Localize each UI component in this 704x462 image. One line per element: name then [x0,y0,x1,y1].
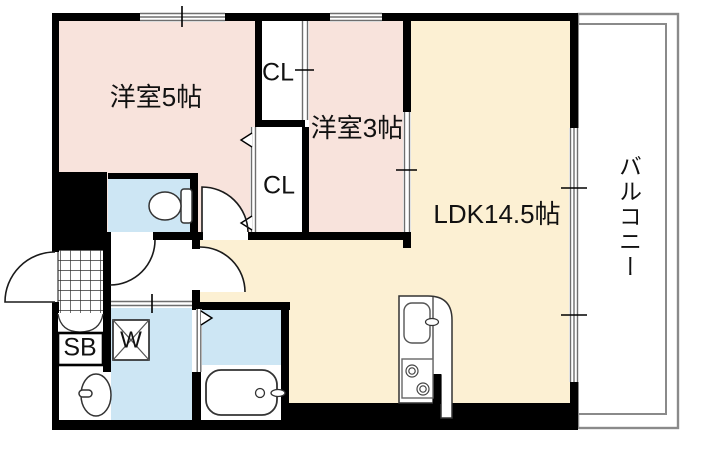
bathtub-handle-icon [271,390,285,397]
wall-segment [225,13,330,21]
bedroom5-label: 洋室5帖 [110,84,202,110]
wall-segment [570,382,578,430]
toilet-door-arc [110,240,155,285]
wall-segment [192,240,200,249]
washing-machine-label: W [120,329,142,352]
toilet-tank-icon [181,189,192,223]
bathroom-floor [201,308,281,365]
entrance-tile-floor [58,248,104,318]
shoe-cabinet-door-bg [58,313,103,333]
wall-segment [192,372,201,420]
wall-segment [281,302,289,423]
toilet-bowl-icon [149,192,181,220]
wall-segment [192,302,290,310]
wall-segment [382,13,578,21]
wall-segment [192,290,200,304]
bedroom3-label: 洋室3帖 [311,115,403,141]
wall-segment [255,21,262,120]
floor-plan: 洋室5帖 CL CL 洋室3帖 LDK14.5帖 W SB バルコニー [0,0,704,462]
wall-segment [255,120,305,127]
wall-segment [285,403,578,430]
entry-door-arc [5,252,55,302]
wall-segment [153,232,203,240]
wall-segment [570,13,578,128]
wall-block-entry-side [52,172,107,250]
kitchen-faucet-icon [426,319,439,326]
wall-segment [433,374,441,404]
bathtub-drain-icon [256,389,265,398]
wall-segment [108,173,192,179]
ldk-floor-middle [200,240,570,310]
closet-lower-label: CL [263,174,295,199]
ldk-label: LDK14.5帖 [433,201,560,227]
shoe-box-label: SB [63,336,96,361]
wall-segment [52,13,140,21]
wall-segment [302,127,309,232]
vanity-faucet-icon [79,390,92,397]
balcony-label: バルコニー [617,155,640,280]
floor-plan-svg [0,0,704,462]
bathtub-icon [206,370,277,415]
wall-segment [403,13,411,112]
wall-segment [52,420,290,430]
closet-upper-label: CL [262,61,294,86]
wall-segment [248,232,411,240]
